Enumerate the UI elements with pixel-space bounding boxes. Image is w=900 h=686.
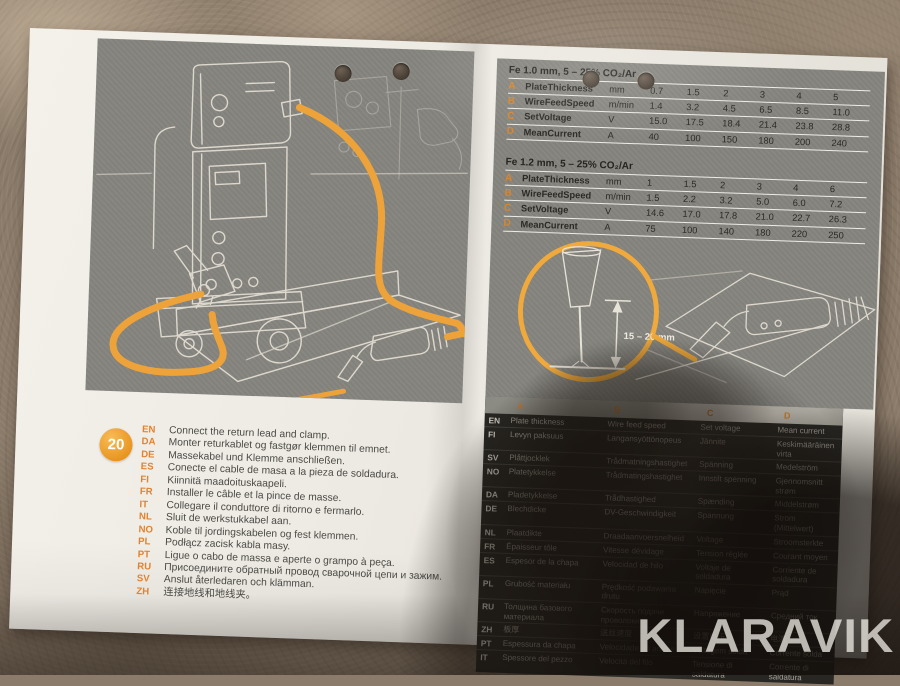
glossary-cell: Velocidad de hilo	[602, 559, 696, 581]
row-label: PlateThickness	[522, 173, 606, 186]
language-code: NL	[481, 527, 507, 538]
row-value: 200	[795, 136, 832, 147]
glossary-cell: Jännite	[699, 437, 777, 459]
glossary-cell: Espesor de la chapa	[505, 555, 603, 578]
row-value: 1.4	[649, 101, 686, 112]
language-code: FR	[480, 541, 506, 552]
row-value: 100	[685, 133, 722, 144]
language-code: RU	[137, 561, 158, 574]
row-label: SetVoltage	[521, 204, 605, 217]
stickout-callout-illustration: 15 – 20 mm	[485, 228, 879, 409]
row-value: 14.6	[646, 208, 683, 219]
language-code: EN	[142, 424, 163, 437]
language-code: FI	[140, 474, 161, 487]
row-key: C	[507, 111, 524, 123]
glossary-cell: Толщина базового материала	[504, 602, 602, 625]
row-value: 3	[757, 182, 794, 193]
row-unit: A	[607, 130, 648, 141]
step-number-badge: 20	[99, 428, 133, 462]
row-value: 40	[648, 131, 685, 142]
row-value: 11.0	[832, 107, 869, 118]
row-value: 5.0	[756, 197, 793, 208]
row-value: 21.0	[755, 212, 792, 223]
photo-scene: Fe 1.0 mm, 5 – 25% CO₂/Ar A PlateThickne…	[0, 0, 900, 675]
glossary-cell: Innstilt spenning	[698, 474, 776, 496]
glossary-cell: Blechdicke	[507, 504, 605, 527]
glossary-cell: Corrente di saldatura	[769, 662, 835, 683]
settings-table-fe10: Fe 1.0 mm, 5 – 25% CO₂/Ar A PlateThickne…	[506, 65, 870, 152]
row-key: D	[506, 126, 523, 138]
glossary-cell: Prąd	[771, 588, 837, 609]
illustration-panel	[85, 38, 474, 403]
row-key: C	[504, 203, 521, 215]
glossary-cell: Spannung	[697, 511, 775, 533]
row-unit: m/min	[609, 100, 650, 111]
language-code: ES	[479, 555, 506, 575]
language-code: ZH	[477, 624, 503, 635]
row-value: 26.3	[829, 214, 866, 225]
plate-edge-line	[636, 317, 828, 386]
language-code: SV	[483, 452, 509, 463]
row-key: B	[504, 187, 521, 199]
torch-cable-end	[447, 333, 463, 338]
row-value: 5	[833, 92, 870, 103]
row-value: 4.5	[723, 104, 760, 115]
language-code: DA	[141, 437, 162, 450]
row-value: 17.8	[719, 211, 756, 222]
row-value: 7.2	[829, 199, 866, 210]
welding-setup-illustration	[85, 38, 474, 403]
row-key: D	[503, 218, 520, 230]
row-value: 4	[793, 183, 830, 194]
detail-circle	[518, 241, 659, 382]
language-code: DE	[141, 449, 162, 462]
language-code: FI	[484, 429, 511, 449]
glossary-col-c: C	[701, 407, 778, 420]
glossary-cell: Levyn paksuus	[510, 430, 608, 453]
row-value: 4	[796, 91, 833, 102]
row-value: 17.0	[682, 209, 719, 220]
row-label: WireFeedSpeed	[521, 189, 605, 202]
glossary-cell: Platetykkelse	[508, 467, 606, 490]
row-value: 23.8	[795, 121, 832, 132]
row-value: 1.5	[646, 193, 683, 204]
workpiece-plate	[664, 270, 875, 379]
glossary-cell: Prędkość podawania drutu	[601, 582, 695, 604]
watermark: KLARAVIK	[637, 608, 894, 663]
row-value: 2	[723, 88, 760, 99]
language-code: IT	[139, 499, 160, 512]
language-code: IT	[476, 652, 503, 672]
row-value: 240	[831, 138, 868, 149]
cart	[148, 126, 313, 363]
language-code: SV	[137, 574, 158, 587]
torch-detail	[690, 291, 869, 363]
travel-arrow	[257, 388, 344, 403]
glossary-cell: Strom (Mittelwert)	[774, 514, 840, 535]
language-code: NL	[139, 511, 160, 524]
row-value: 18.4	[722, 119, 759, 130]
row-value: 3.2	[719, 195, 756, 206]
row-label: SetVoltage	[524, 112, 608, 125]
row-value: 150	[722, 134, 759, 145]
language-code: EN	[484, 415, 510, 426]
row-key: A	[505, 172, 522, 184]
glossary-cell: DV-Geschwindigkeit	[604, 508, 698, 530]
row-value: 1.5	[687, 87, 724, 98]
row-value: 1.5	[683, 179, 720, 190]
language-code: RU	[478, 601, 505, 621]
instruction-list: EN Connect the return lead and clamp. DA…	[136, 424, 480, 610]
language-code: PT	[137, 549, 158, 562]
glossary-col-d: D	[778, 410, 843, 422]
tables-panel: Fe 1.0 mm, 5 – 25% CO₂/Ar A PlateThickne…	[485, 58, 885, 409]
glossary-cell: Grubość materiału	[504, 579, 602, 602]
glossary-cell: Napięcie	[694, 585, 772, 607]
row-value: 3	[760, 90, 797, 101]
row-value: 6	[830, 184, 867, 195]
language-code: NO	[138, 524, 159, 537]
row-value: 1	[647, 178, 684, 189]
row-unit: V	[605, 207, 646, 218]
row-value: 8.5	[796, 106, 833, 117]
row-value: 2	[720, 180, 757, 191]
torch-cable	[292, 107, 472, 333]
row-value: 17.5	[686, 117, 723, 128]
ghost-parts-sketch	[331, 75, 464, 181]
language-code: NO	[482, 466, 509, 486]
row-value: 0.7	[650, 86, 687, 97]
row-value: 6.0	[793, 198, 830, 209]
row-label: WireFeedSpeed	[525, 97, 609, 110]
glossary-cell: Keskimääräinen virta	[776, 439, 842, 460]
language-code: PT	[477, 638, 503, 649]
settings-table-rows: A PlateThickness mm 0.7 1.5 2 3 4 5 B	[506, 79, 870, 152]
bench-line	[97, 171, 151, 176]
callout-tangent-line	[652, 268, 742, 283]
torch	[338, 323, 448, 385]
glossary-cell: Spessore del pezzo	[502, 653, 600, 676]
glossary-col-b: B	[608, 404, 701, 417]
instruction-text: 连接地线和地线夹。	[163, 587, 256, 603]
row-value: 28.8	[832, 123, 869, 134]
language-code: DE	[481, 503, 508, 523]
row-key: B	[508, 96, 525, 108]
glossary-cell: Corriente de soldadura	[772, 565, 838, 586]
row-unit: mm	[606, 176, 647, 187]
language-code: PL	[138, 536, 159, 549]
row-unit: V	[608, 115, 649, 126]
language-code: FR	[140, 486, 161, 499]
row-unit: m/min	[605, 191, 646, 202]
row-value: 3.2	[686, 102, 723, 113]
row-value: 15.0	[649, 116, 686, 127]
instruction-sheet: Fe 1.0 mm, 5 – 25% CO₂/Ar A PlateThickne…	[9, 28, 887, 659]
glossary-cell: Langansyöttönopeus	[607, 433, 701, 455]
bench-line	[311, 168, 467, 179]
language-code: DA	[482, 489, 508, 500]
row-key: A	[508, 80, 525, 92]
glossary-cell: Trådmatingshastighet	[605, 471, 699, 493]
row-value: 21.4	[759, 120, 796, 131]
row-value: 22.7	[792, 213, 829, 224]
glossary-cell: Gjennomsnitt strøm	[775, 476, 841, 497]
row-value: 180	[758, 135, 795, 146]
glossary-cell: Voltaje de soldadura	[695, 562, 773, 584]
glossary-col-a: A	[511, 401, 608, 414]
language-code: PL	[478, 578, 505, 598]
language-code: ZH	[136, 586, 157, 599]
language-code: ES	[141, 461, 162, 474]
row-value: 6.5	[759, 105, 796, 116]
row-label: MeanCurrent	[523, 127, 607, 140]
row-value: 2.2	[683, 194, 720, 205]
